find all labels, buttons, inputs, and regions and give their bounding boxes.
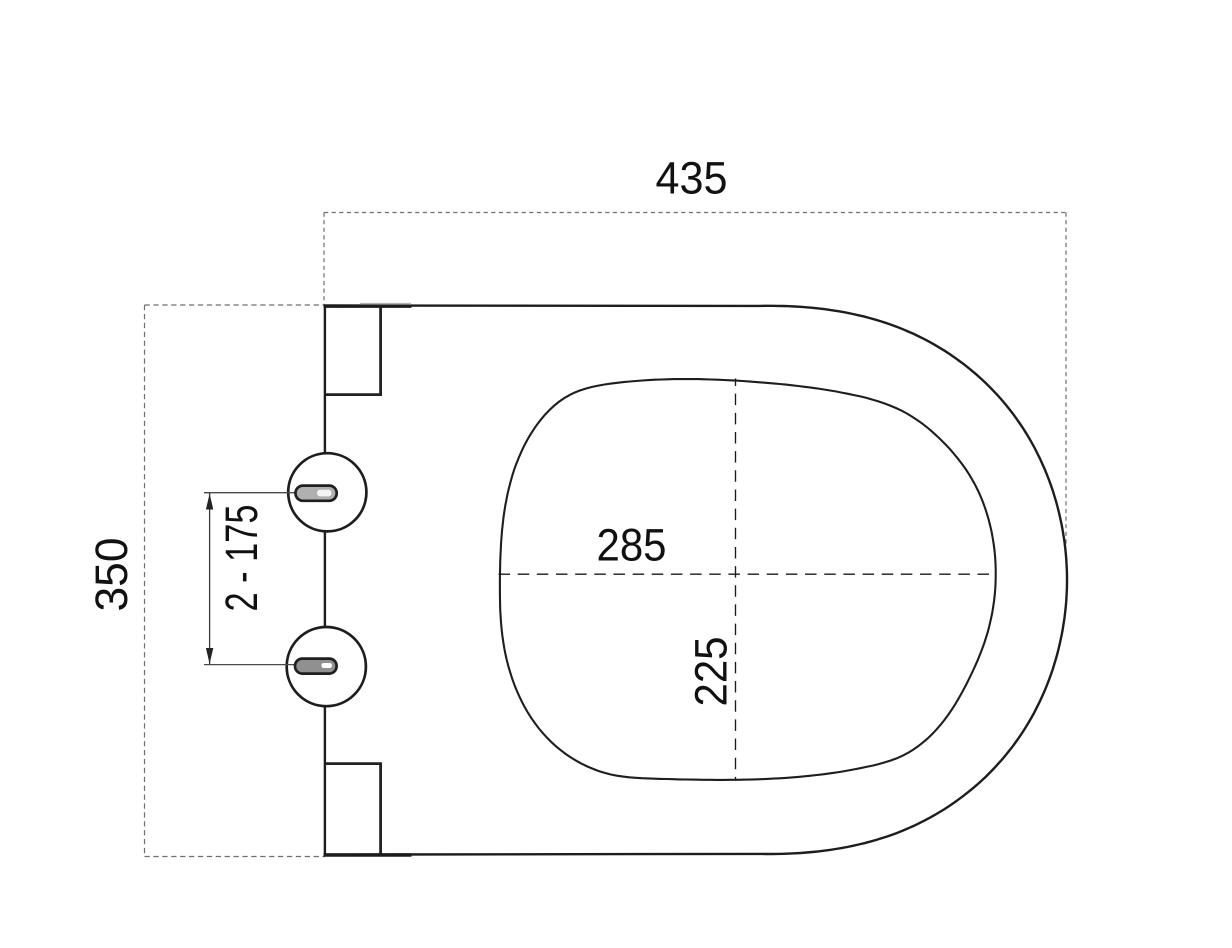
svg-text:350: 350 <box>86 538 137 612</box>
svg-text:2 - 175: 2 - 175 <box>216 505 267 612</box>
svg-text:225: 225 <box>686 637 737 707</box>
svg-text:285: 285 <box>597 520 667 571</box>
svg-text:435: 435 <box>656 153 728 204</box>
